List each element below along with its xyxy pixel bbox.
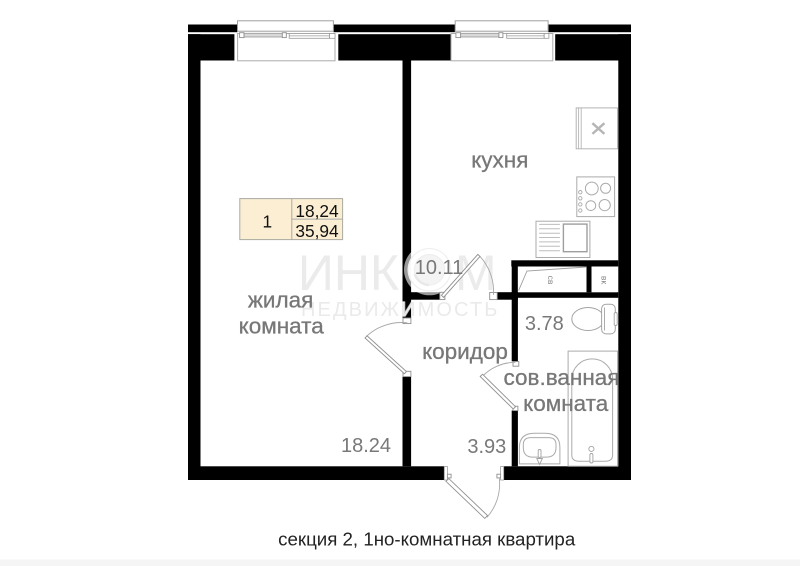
svg-text:3.93: 3.93 <box>467 436 506 458</box>
svg-text:жилая: жилая <box>248 287 313 312</box>
svg-text:18,24: 18,24 <box>295 201 339 221</box>
svg-text:сов.ванная: сов.ванная <box>504 365 620 390</box>
svg-text:комната: комната <box>523 391 609 416</box>
svg-text:секция 2, 1но-комнатная кварти: секция 2, 1но-комнатная квартира <box>278 528 576 549</box>
svg-text:вк: вк <box>599 276 609 285</box>
svg-text:коридор: коридор <box>422 339 508 364</box>
svg-text:кухня: кухня <box>471 148 528 173</box>
svg-text:1: 1 <box>262 212 272 232</box>
svg-text:18.24: 18.24 <box>341 435 391 457</box>
svg-text:св: св <box>546 276 556 285</box>
svg-text:НЕДВИЖИМОСТЬ: НЕДВИЖИМОСТЬ <box>301 299 499 321</box>
svg-text:35,94: 35,94 <box>295 221 339 241</box>
svg-text:3.78: 3.78 <box>525 313 564 335</box>
svg-text:10.11: 10.11 <box>415 257 464 279</box>
svg-text:комната: комната <box>239 313 325 338</box>
